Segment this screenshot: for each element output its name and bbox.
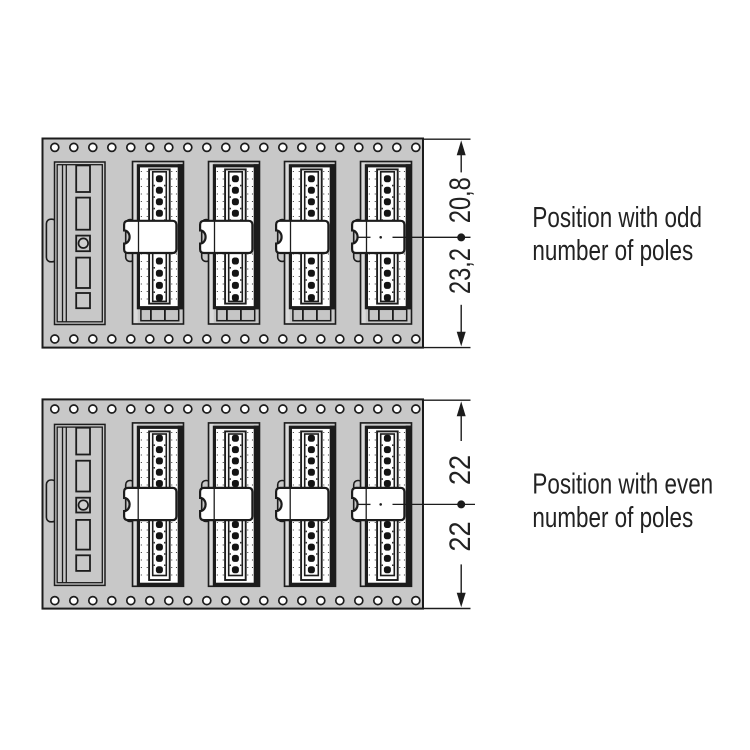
svg-text:Position with even: Position with even — [532, 469, 713, 500]
svg-text:Position with odd: Position with odd — [532, 202, 702, 233]
svg-text:23,2: 23,2 — [444, 248, 477, 294]
svg-text:22: 22 — [444, 521, 477, 551]
svg-text:20,8: 20,8 — [444, 177, 477, 223]
svg-text:22: 22 — [444, 455, 477, 485]
svg-text:number of poles: number of poles — [532, 502, 693, 533]
svg-text:number of poles: number of poles — [532, 236, 693, 267]
